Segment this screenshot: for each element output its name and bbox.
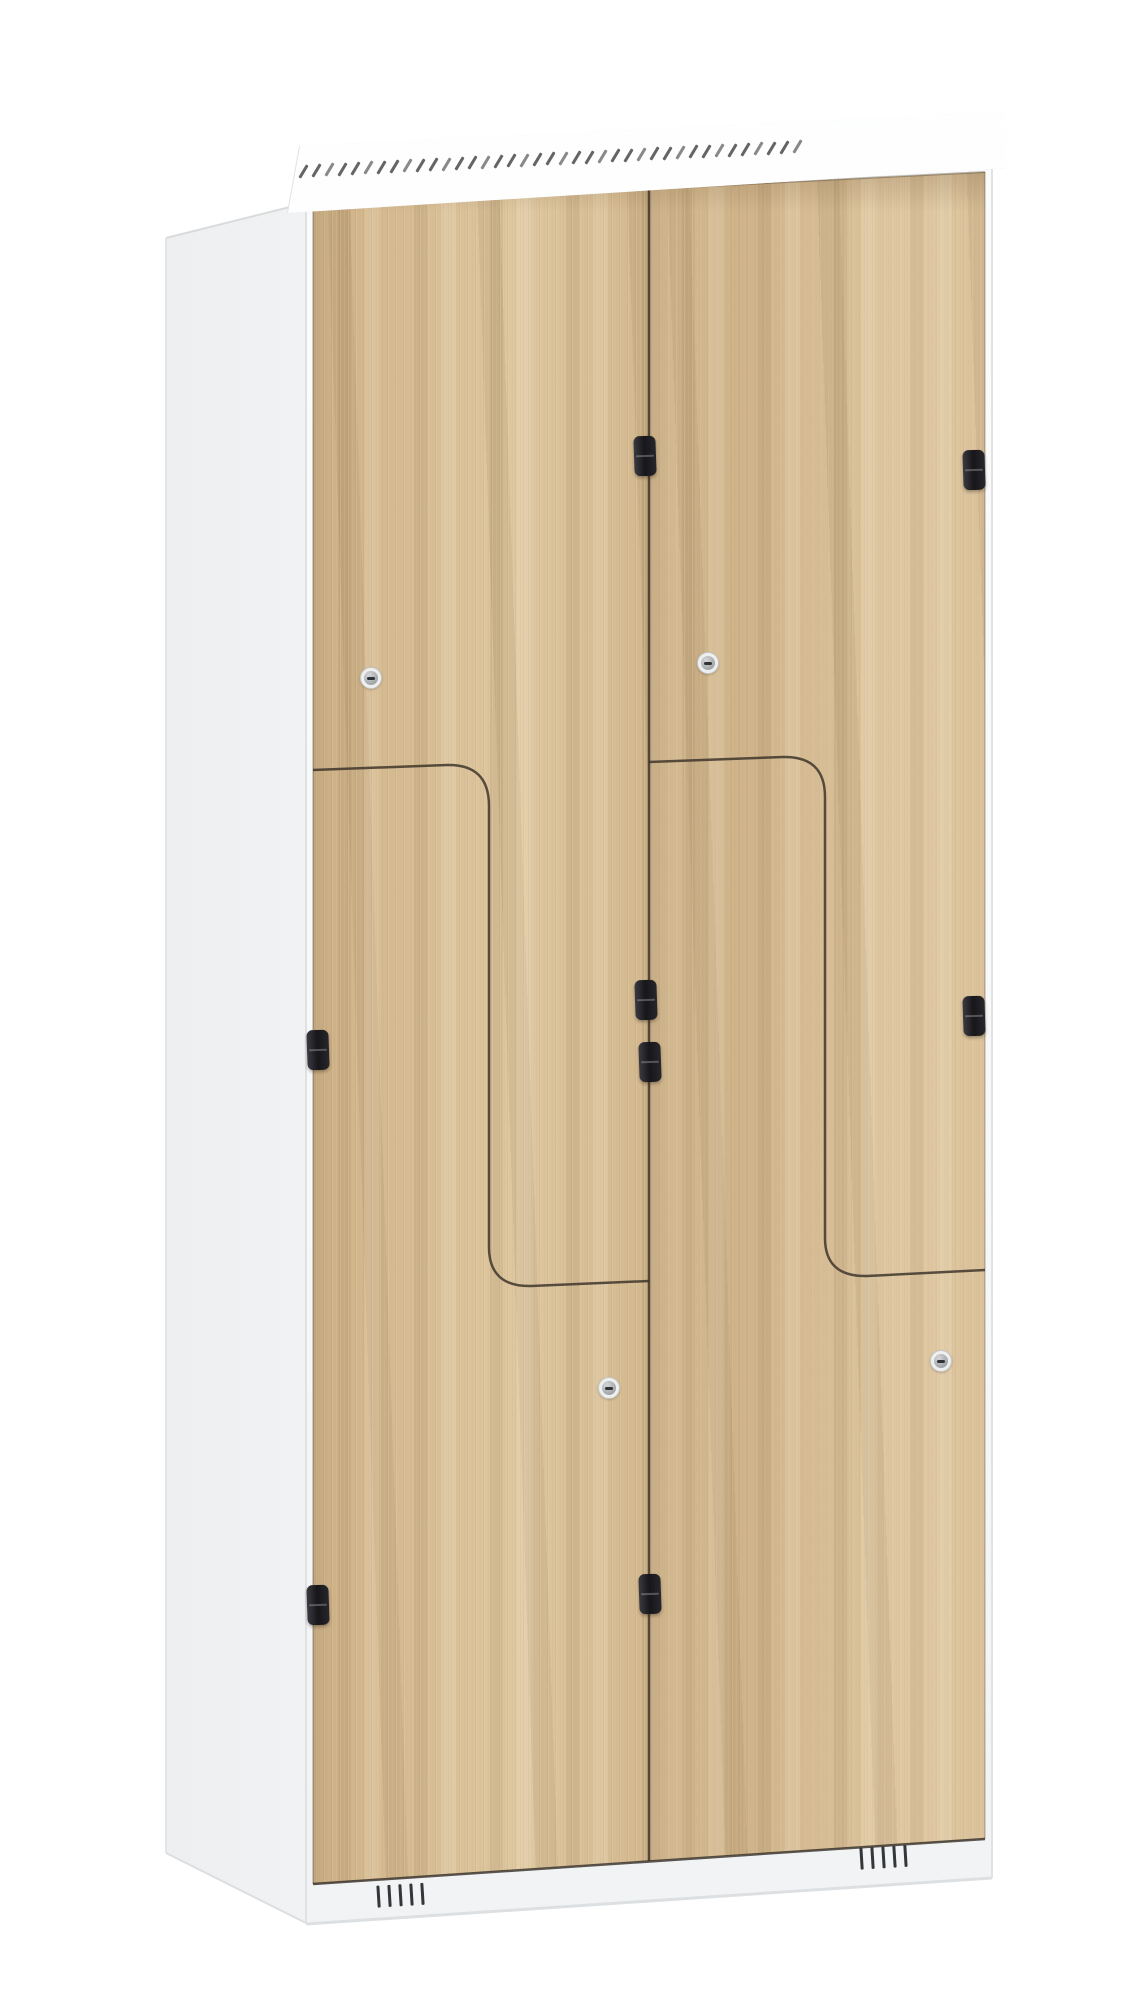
vent-slat bbox=[870, 1847, 874, 1869]
vent-slat bbox=[903, 1845, 907, 1867]
vent-slat bbox=[420, 1883, 424, 1905]
door-hinge bbox=[638, 1042, 661, 1083]
vent-slat bbox=[387, 1885, 391, 1907]
locker-product-photo bbox=[0, 0, 1125, 2000]
door-hinge bbox=[306, 1030, 329, 1071]
vent-slat bbox=[409, 1884, 413, 1906]
door-hinge bbox=[962, 450, 985, 491]
vent-slat bbox=[376, 1886, 380, 1908]
hardware-layer bbox=[0, 0, 1125, 2000]
door-hinge bbox=[638, 1574, 661, 1615]
vent-slat bbox=[881, 1846, 885, 1868]
lock-keyhole-slot bbox=[367, 677, 375, 680]
cylinder-lock bbox=[697, 652, 719, 674]
door-hinge bbox=[306, 1585, 329, 1626]
vent-slat bbox=[892, 1846, 896, 1868]
base-vent-group bbox=[376, 1882, 432, 1907]
base-vent-group bbox=[859, 1844, 915, 1869]
door-hinge bbox=[634, 980, 657, 1021]
door-hinge bbox=[962, 996, 985, 1037]
vent-slat bbox=[398, 1884, 402, 1906]
lock-keyhole-slot bbox=[605, 1387, 613, 1390]
lock-keyhole-slot bbox=[937, 1360, 945, 1363]
cylinder-lock bbox=[598, 1377, 620, 1399]
lock-keyhole-slot bbox=[704, 662, 712, 665]
cylinder-lock bbox=[930, 1350, 952, 1372]
vent-slat bbox=[859, 1848, 863, 1870]
door-hinge bbox=[633, 436, 656, 477]
cylinder-lock bbox=[360, 667, 382, 689]
